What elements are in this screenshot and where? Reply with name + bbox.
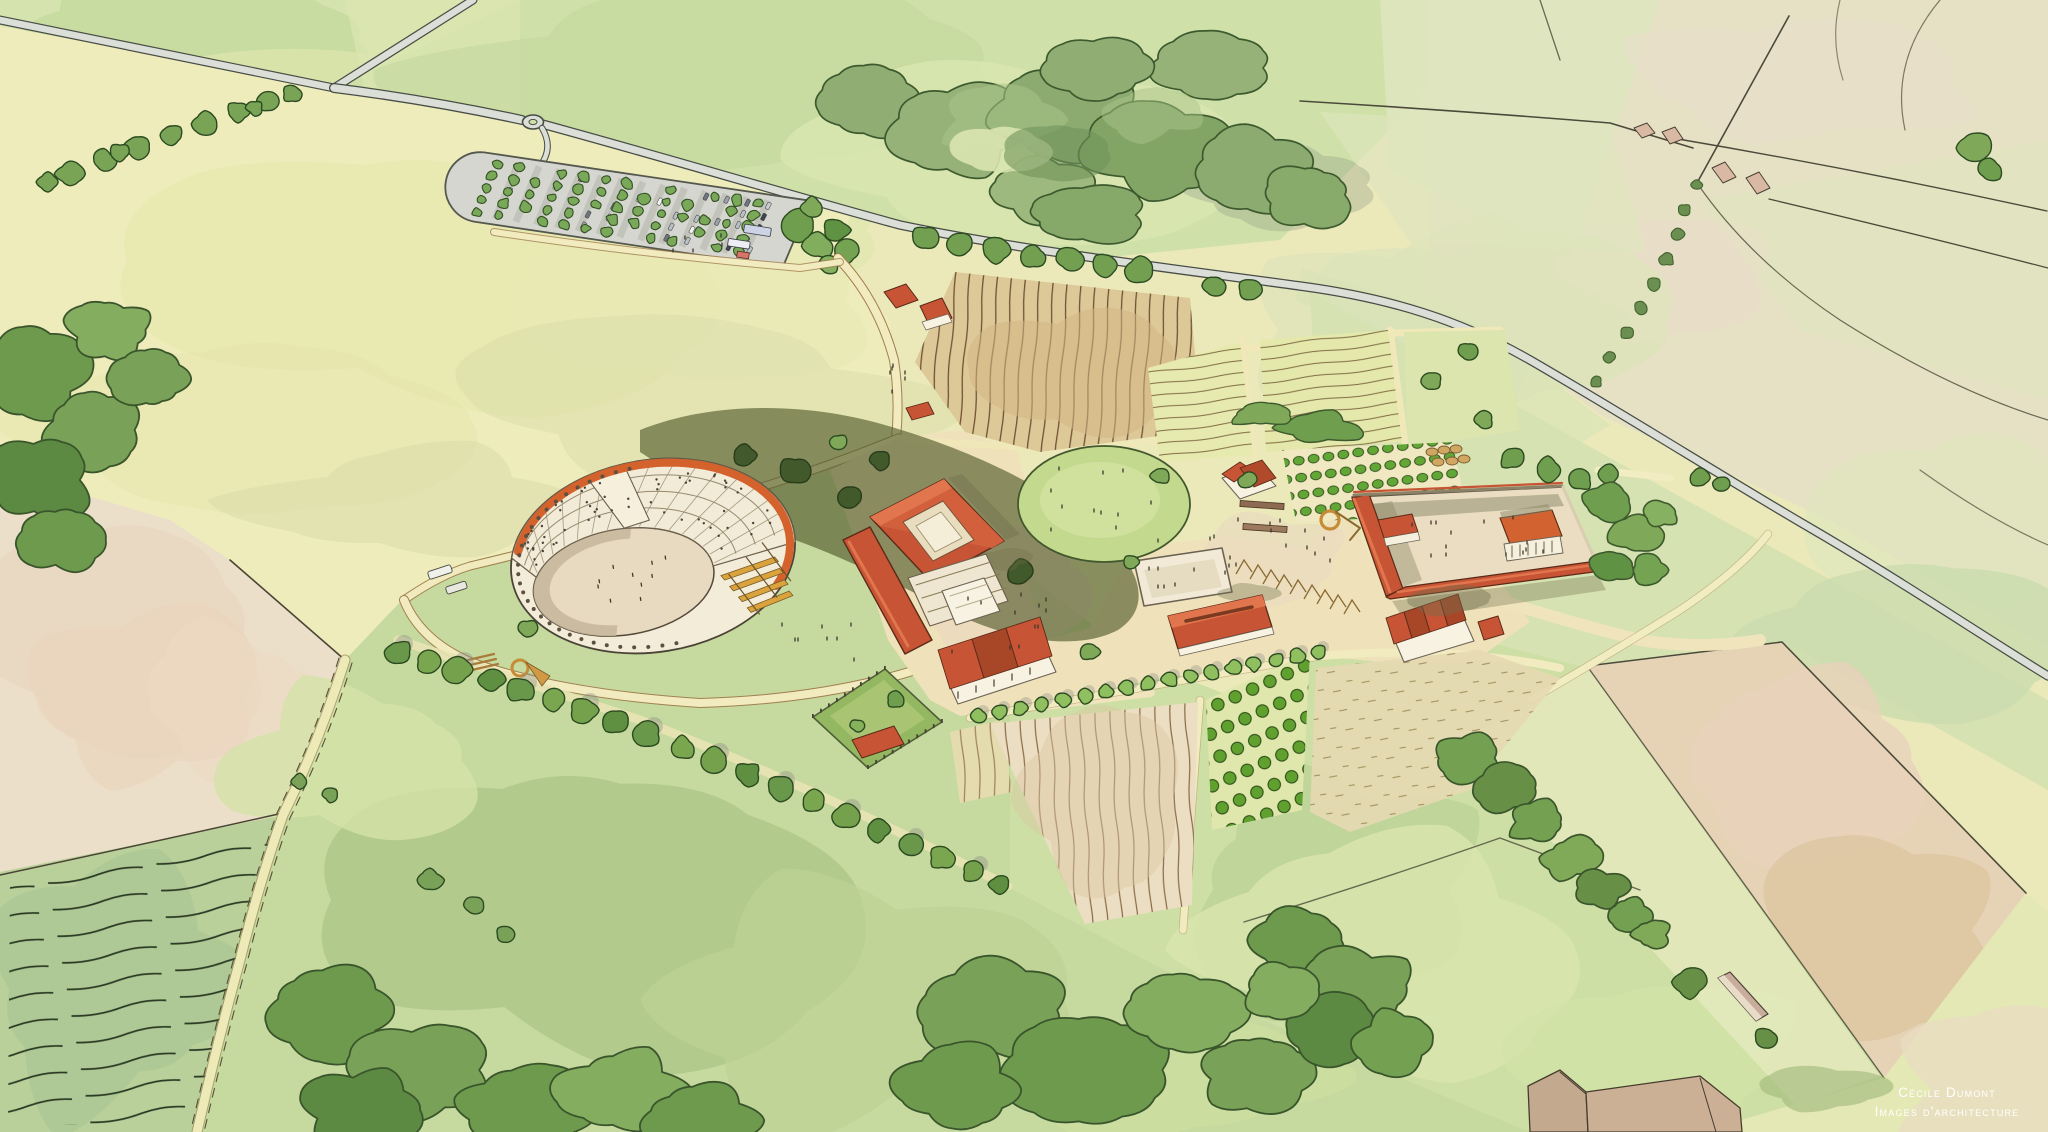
svg-text:Cécile Dumont: Cécile Dumont bbox=[1898, 1085, 1996, 1100]
svg-text:Images d'architecture: Images d'architecture bbox=[1875, 1104, 2020, 1119]
